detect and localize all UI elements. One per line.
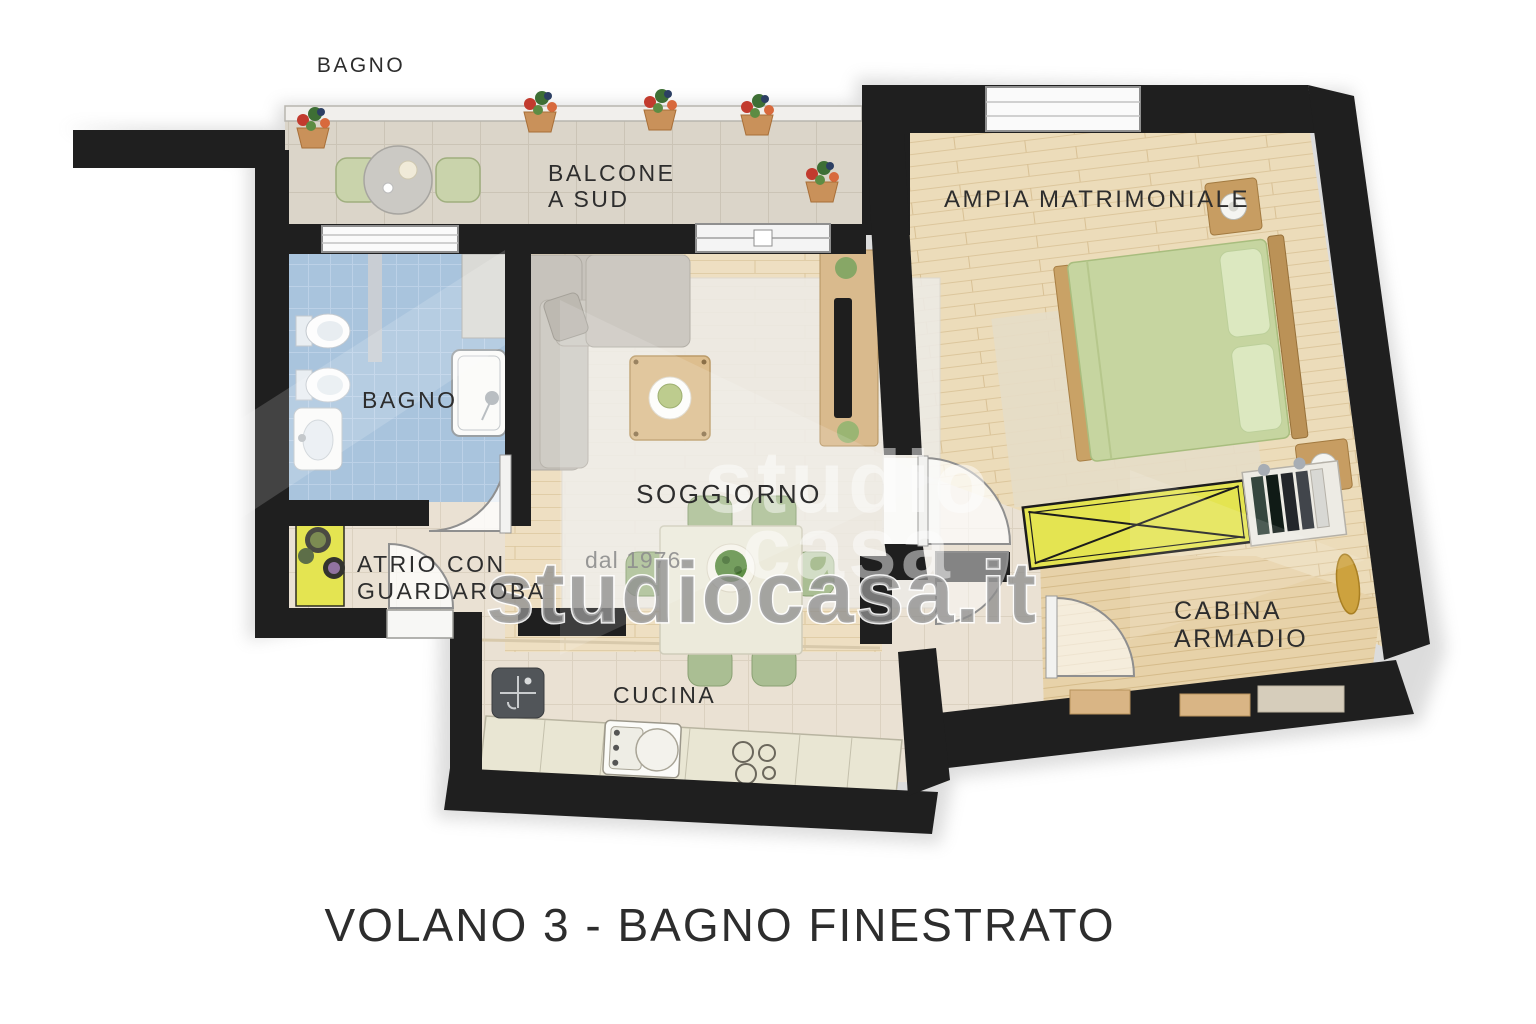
tv-screen [834,298,852,418]
balcony-plate [399,161,417,179]
label-atrium-line2: GUARDAROBA [357,578,546,604]
kitchen-appliance [492,668,544,718]
balcony-railing [285,106,862,121]
watermark-url: studiocasa.it [486,545,1038,641]
bedroom-window [986,87,1140,131]
tv-sideboard [820,250,878,446]
double-bed [1053,235,1308,466]
atrium-furniture [296,514,345,606]
bathroom-window [322,226,458,252]
label-balcony-line2: A SUD [548,186,630,212]
bidet [296,314,350,348]
closet-bench-2 [1180,694,1250,716]
label-living: SOGGIORNO [636,479,822,509]
label-bathroom: BAGNO [362,387,458,413]
wall-atrium-bottom [285,608,387,638]
balcony-chair-right [436,158,480,202]
wall-stub-topleft [73,130,285,168]
closet-bench-1 [1070,690,1130,714]
label-bedroom: AMPIA MATRIMONIALE [944,186,1250,213]
kitchen-sink [603,720,682,778]
label-kitchen: CUCINA [613,682,716,708]
balcony-cup [383,183,393,193]
label-closet-line2: ARMADIO [1174,625,1308,653]
label-balcony-bath-note: BAGNO [317,54,405,77]
closet-mat [1258,686,1344,712]
label-balcony-line1: BALCONE [548,160,675,186]
label-closet-line1: CABINA [1174,597,1282,625]
floorplan-page: studio casa dal 1976 studiocasa.it BAGNO… [0,0,1536,1024]
balcony-table [364,146,432,214]
wall-kitchen-left [450,612,482,774]
label-atrium-line1: ATRIO CON [357,551,506,577]
floorplan-canvas: studio casa dal 1976 studiocasa.it BAGNO… [0,0,1536,1024]
balcony-sliding-door [696,224,830,252]
wall-bath-bottom [289,500,429,526]
plan-caption: VOLANO 3 - BAGNO FINESTRATO [325,899,1116,951]
sideboard-plant-top [835,257,857,279]
